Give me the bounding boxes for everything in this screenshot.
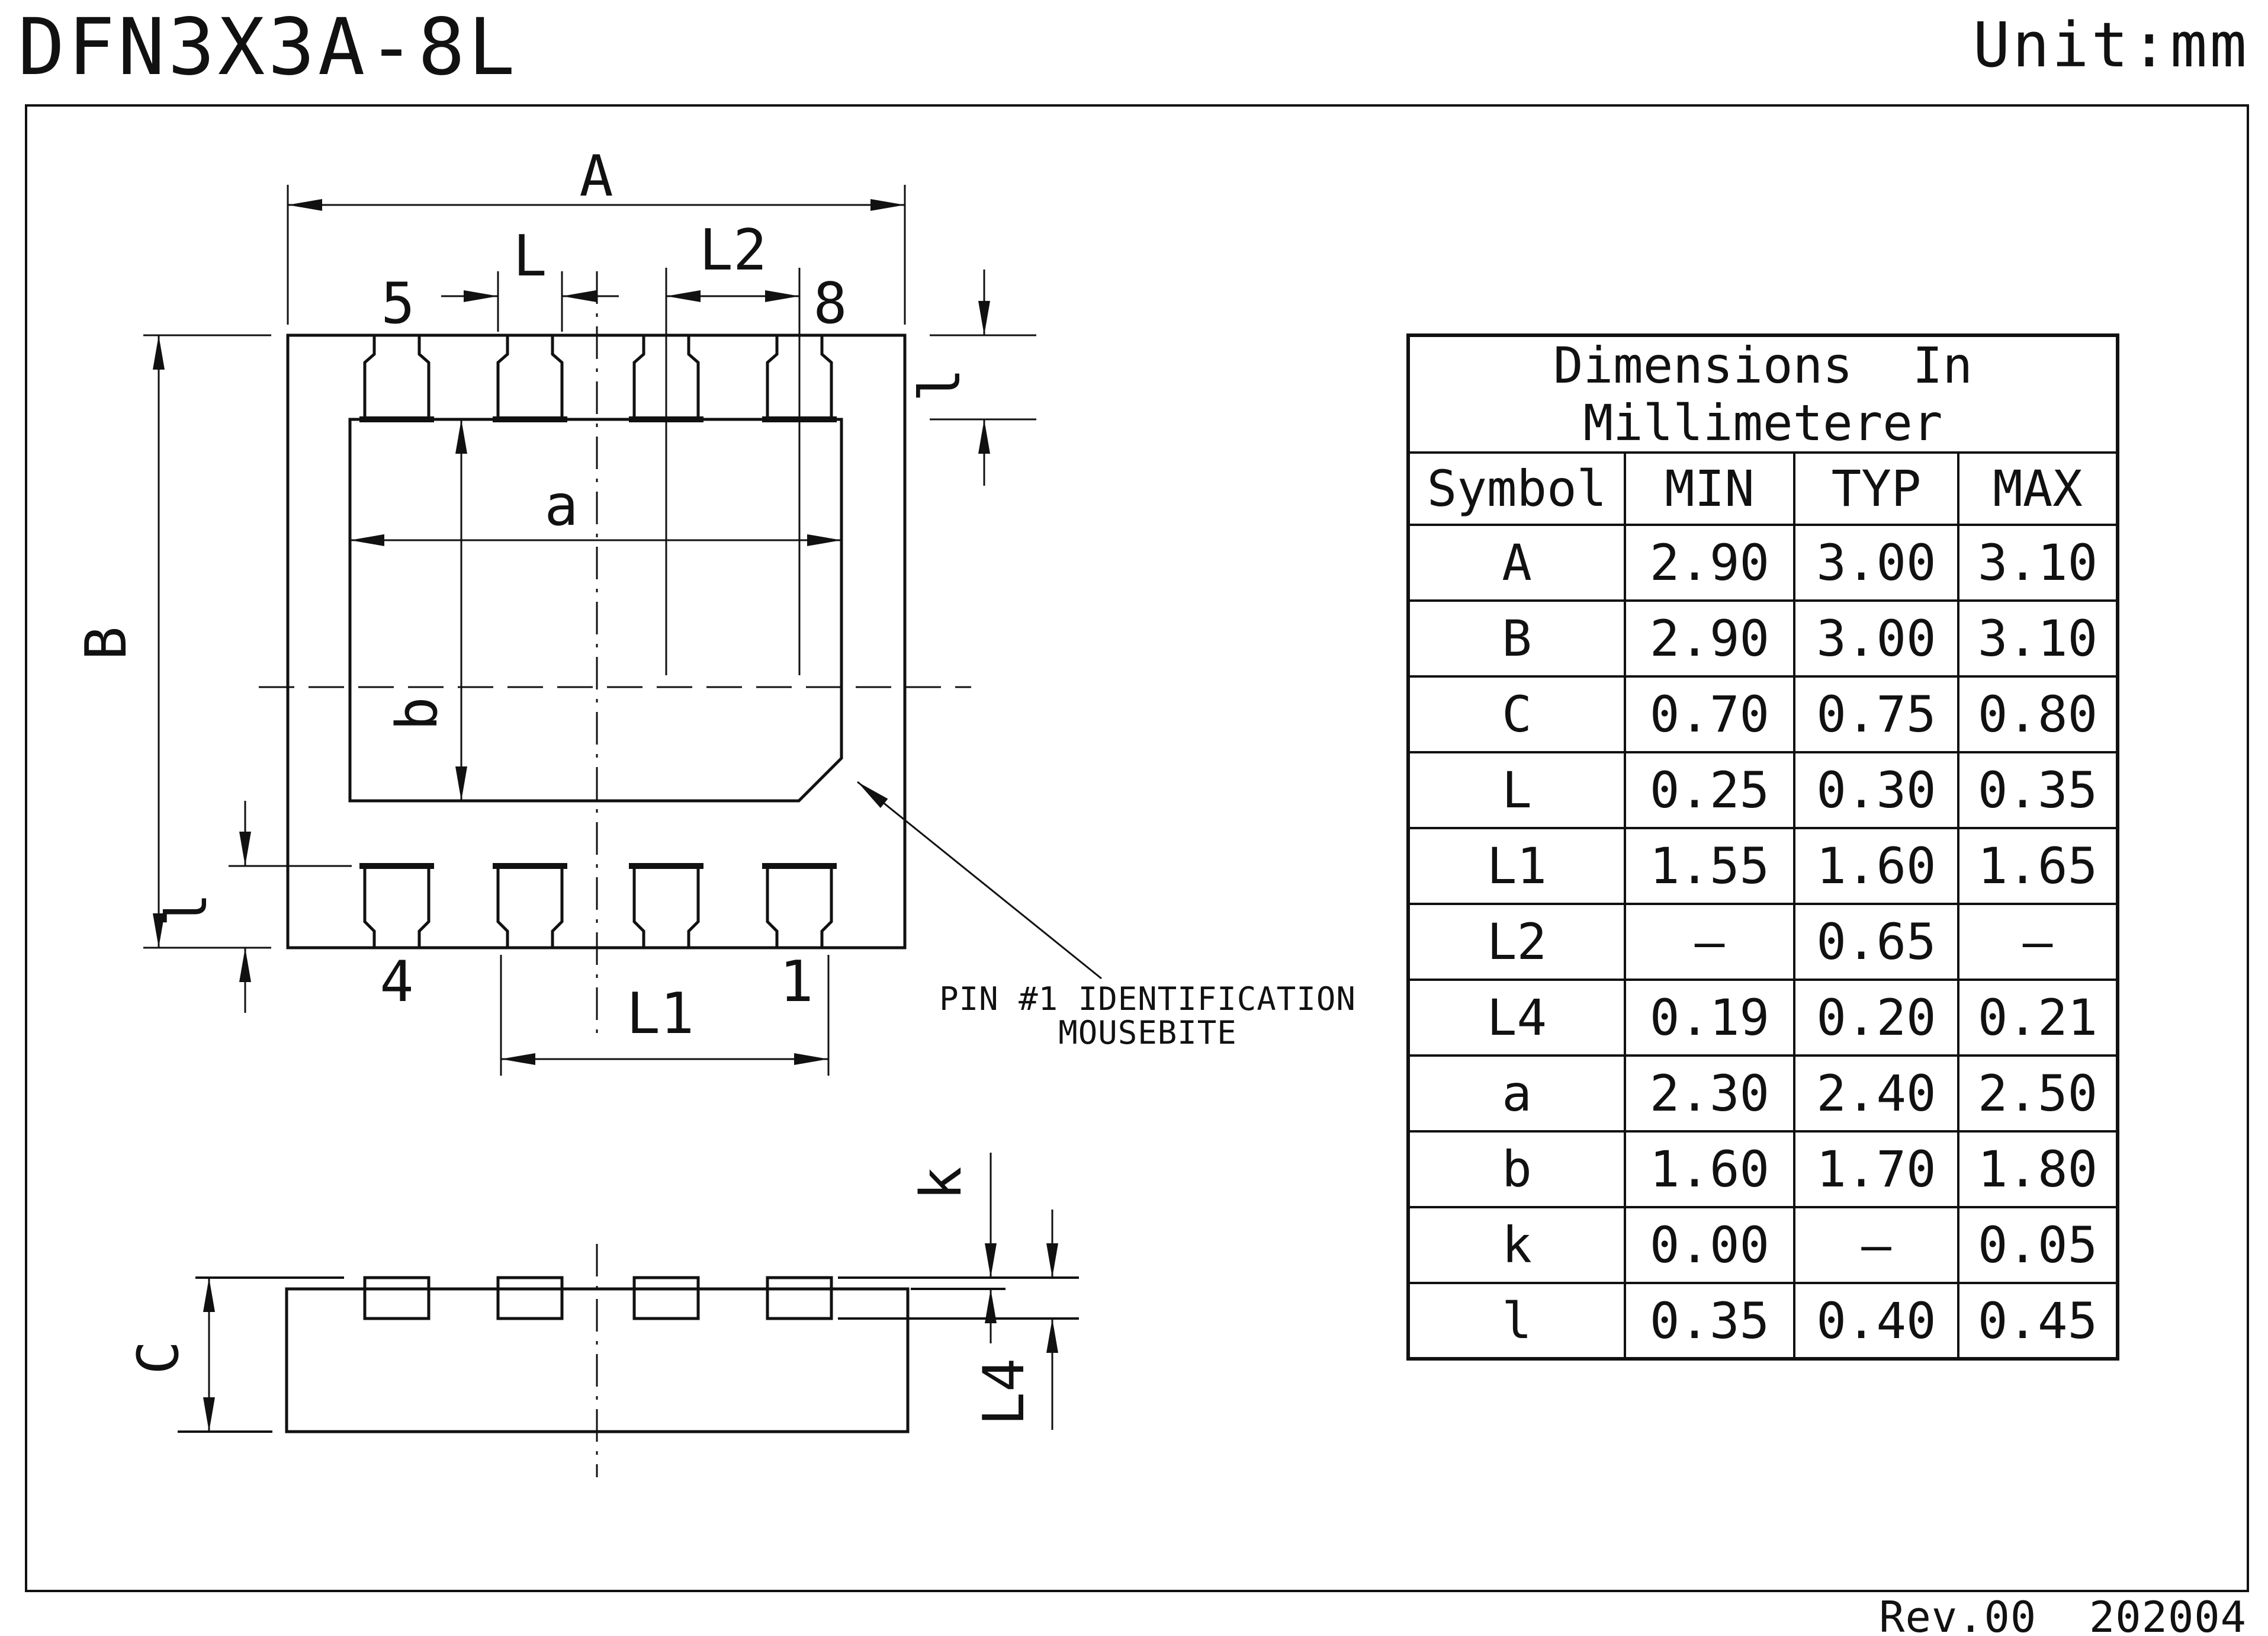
dim-b-label: b [385,697,450,730]
datasheet-page: DFN3X3A-8L Unit:mm Rev.00 202004 [0,0,2268,1636]
table-title-line1: Dimensions In [1553,336,1973,394]
cell-min: 2.30 [1625,1056,1794,1131]
cell-max: 0.80 [1958,676,2118,752]
table-title-row: Dimensions InMillimeterer [1408,335,2118,453]
cell-symbol: l [1408,1283,1625,1359]
cell-min: 0.25 [1625,752,1794,828]
col-header-max: MAX [1958,453,2118,525]
cell-symbol: L [1408,752,1625,828]
exposed-pad-outline [350,419,841,801]
cell-symbol: L1 [1408,828,1625,904]
cell-max: 0.45 [1958,1283,2118,1359]
cell-symbol: a [1408,1056,1625,1131]
dim-B-lines [143,335,271,948]
cell-symbol: k [1408,1207,1625,1283]
cell-min: 0.70 [1625,676,1794,752]
side-terminal-4 [767,1278,831,1319]
cell-typ: 1.70 [1794,1131,1958,1207]
dim-l-bottom-label: l [155,893,220,926]
cell-typ: – [1794,1207,1958,1283]
dim-k-label: k [909,1166,974,1200]
table-header-row: Symbol MIN TYP MAX [1408,453,2118,525]
terminal-pin5 [365,335,429,418]
cell-symbol: L4 [1408,980,1625,1056]
cell-symbol: C [1408,676,1625,752]
cell-min: 1.60 [1625,1131,1794,1207]
table-row: a 2.30 2.40 2.50 [1408,1056,2118,1131]
col-header-typ: TYP [1794,453,1958,525]
cell-min: 0.19 [1625,980,1794,1056]
cell-max: 1.80 [1958,1131,2118,1207]
dim-L4-label: L4 [972,1358,1037,1426]
side-view-labels: C k L4 [126,1166,1037,1426]
table-row: L4 0.19 0.20 0.21 [1408,980,2118,1056]
col-header-symbol: Symbol [1408,453,1625,525]
pin1-label: 1 [779,949,813,1015]
cell-max: 0.35 [1958,752,2118,828]
table-row: A 2.90 3.00 3.10 [1408,525,2118,601]
cell-typ: 0.30 [1794,752,1958,828]
side-terminal-2 [498,1278,562,1319]
cell-min: 2.90 [1625,525,1794,601]
cell-max: 1.65 [1958,828,2118,904]
cell-max: 0.21 [1958,980,2118,1056]
dim-A-label: A [579,144,613,209]
cell-typ: 3.00 [1794,601,1958,676]
dimensions-table: Dimensions InMillimeterer Symbol MIN TYP… [1406,333,2119,1361]
pin4-label: 4 [380,949,413,1015]
cell-symbol: B [1408,601,1625,676]
table-row: C 0.70 0.75 0.80 [1408,676,2118,752]
mousebite-note-line2: MOUSEBITE [1058,1014,1237,1051]
dim-L2-lines [666,268,799,675]
cell-max: 3.10 [1958,525,2118,601]
terminal-pin6 [498,335,562,418]
cell-max: 3.10 [1958,601,2118,676]
dim-B-label: B [74,626,139,660]
cell-typ: 3.00 [1794,525,1958,601]
dim-C-label: C [126,1340,191,1374]
cell-symbol: L2 [1408,904,1625,980]
dim-L2-label: L2 [699,218,767,283]
cell-typ: 2.40 [1794,1056,1958,1131]
terminal-pin2 [634,867,698,947]
cell-min: – [1625,904,1794,980]
terminal-pin1 [767,867,831,947]
table-row: b 1.60 1.70 1.80 [1408,1131,2118,1207]
table-row: L 0.25 0.30 0.35 [1408,752,2118,828]
cell-typ: 0.20 [1794,980,1958,1056]
pin5-label: 5 [381,271,415,336]
cell-typ: 0.40 [1794,1283,1958,1359]
mousebite-note-line1: PIN #1 IDENTIFICATION [939,980,1356,1018]
table-row: L1 1.55 1.60 1.65 [1408,828,2118,904]
table-title: Dimensions InMillimeterer [1408,335,2118,453]
dim-C-lines [178,1278,272,1432]
side-terminal-1 [365,1278,429,1319]
table-title-line2: Millimeterer [1583,394,1943,452]
dim-L-label: L [513,224,547,289]
cell-min: 1.55 [1625,828,1794,904]
cell-max: – [1958,904,2118,980]
table-row: L2 – 0.65 – [1408,904,2118,980]
table-row: l 0.35 0.40 0.45 [1408,1283,2118,1359]
cell-symbol: b [1408,1131,1625,1207]
cell-min: 0.00 [1625,1207,1794,1283]
top-view-labels: A L L2 5 8 l B a b l 4 1 L1 PIN #1 IDENT… [74,144,1356,1051]
table-row: B 2.90 3.00 3.10 [1408,601,2118,676]
cell-typ: 0.65 [1794,904,1958,980]
dim-a-label: a [544,473,578,538]
cell-min: 2.90 [1625,601,1794,676]
dim-l-top-label: l [908,368,973,402]
top-terminals [365,335,831,418]
table-row: k 0.00 – 0.05 [1408,1207,2118,1283]
side-terminals [365,1278,831,1319]
dim-l-bottom-lines [229,801,352,1013]
cell-min: 0.35 [1625,1283,1794,1359]
top-view [143,185,1101,1076]
side-view [178,1153,1079,1477]
cell-max: 0.05 [1958,1207,2118,1283]
cell-symbol: A [1408,525,1625,601]
pin8-label: 8 [813,271,847,336]
side-terminal-3 [634,1278,698,1319]
cell-max: 2.50 [1958,1056,2118,1131]
dim-L1-label: L1 [627,981,694,1047]
cell-typ: 1.60 [1794,828,1958,904]
col-header-min: MIN [1625,453,1794,525]
terminal-pin3 [498,867,562,947]
bottom-terminals [365,867,831,947]
package-outline [288,335,905,948]
terminal-pin4 [365,867,429,947]
cell-typ: 0.75 [1794,676,1958,752]
